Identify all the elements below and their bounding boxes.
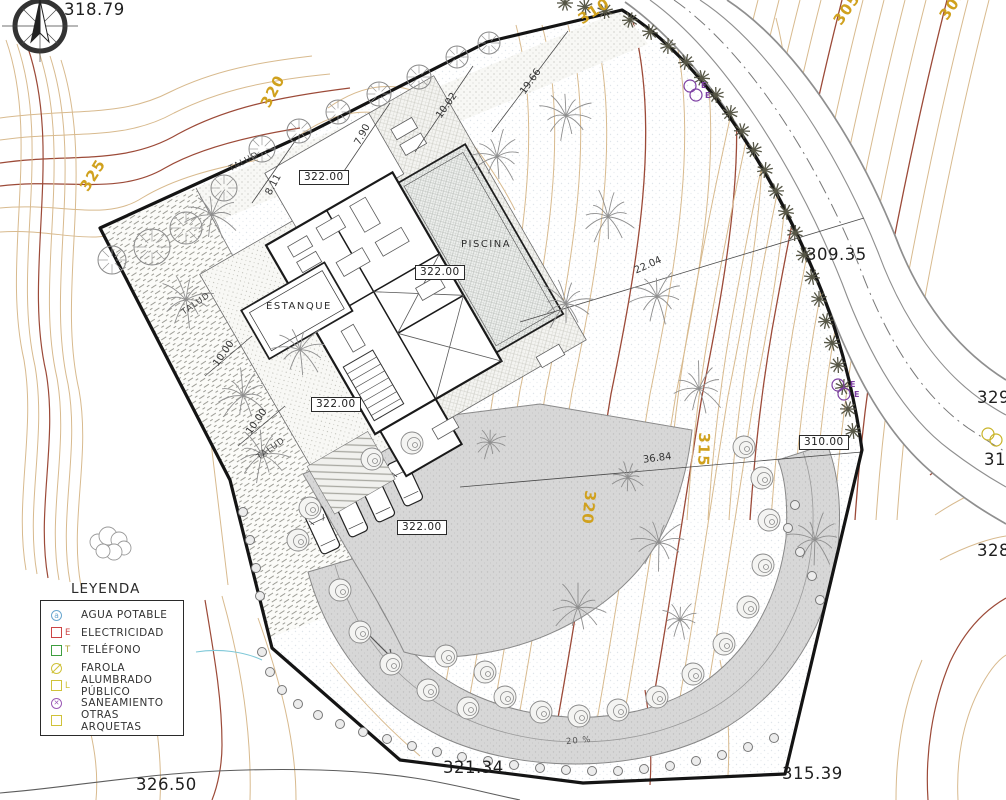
bush — [713, 633, 735, 655]
round-tree — [367, 82, 391, 106]
elevation-label: 329. — [977, 390, 1006, 407]
bush — [494, 686, 516, 708]
legend-item-electricity: E ELECTRICIDAD — [51, 625, 183, 640]
small-shrub — [239, 508, 248, 517]
small-shrub — [294, 700, 303, 709]
site-plan: 318.79 309.35 329. 310 328. 326.50 321.3… — [0, 0, 1006, 800]
bush — [287, 529, 309, 551]
small-shrub — [266, 668, 275, 677]
small-shrub — [408, 742, 417, 751]
level-box: 322.00 — [415, 265, 465, 280]
small-shrub — [510, 761, 519, 770]
pool-label: PISCINA — [461, 240, 511, 250]
streetlamp-icon — [51, 663, 62, 674]
bush — [752, 554, 774, 576]
legend-item-label: ALUMBRADO PÚBLICO — [81, 674, 183, 698]
legend-item-other-boxes: OTRAS ARQUETAS — [51, 713, 183, 728]
bush — [474, 661, 496, 683]
legend-item-telephone: T TELÉFONO — [51, 643, 183, 658]
legend-item-label: FAROLA — [81, 662, 125, 674]
sewerage-icon: ✕ — [51, 698, 62, 709]
legend-item-water: a AGUA POTABLE — [51, 608, 183, 623]
small-shrub — [816, 596, 825, 605]
round-tree — [287, 119, 311, 143]
small-shrub — [314, 711, 323, 720]
small-shrub — [770, 734, 779, 743]
telephone-icon — [51, 645, 62, 656]
bush — [751, 467, 773, 489]
bush — [361, 448, 383, 470]
hedge-shrub — [557, 0, 573, 11]
water-icon: a — [51, 610, 62, 621]
electricity-icon — [51, 627, 62, 638]
legend: a AGUA POTABLE E ELECTRICIDAD T TELÉFONO… — [40, 600, 184, 736]
legend-item-public-lighting: L ALUMBRADO PÚBLICO — [51, 678, 183, 693]
contour-label: 320 — [579, 490, 598, 526]
road-grade-label: 20 % — [566, 736, 592, 747]
bush — [299, 497, 321, 519]
bush — [607, 699, 629, 721]
utility-letter: E — [701, 82, 706, 90]
small-shrub — [588, 767, 597, 776]
small-shrub — [562, 766, 571, 775]
small-shrub — [246, 536, 255, 545]
small-shrub — [256, 592, 265, 601]
cloud-bush — [90, 527, 131, 560]
utility-letter: E — [854, 391, 859, 399]
small-shrub — [666, 762, 675, 771]
bush — [435, 645, 457, 667]
small-shrub — [808, 572, 817, 581]
small-shrub — [383, 735, 392, 744]
bush — [401, 432, 423, 454]
bush — [329, 579, 351, 601]
legend-item-label: TELÉFONO — [81, 644, 141, 656]
bush — [568, 705, 590, 727]
small-shrub — [784, 524, 793, 533]
elevation-label: 318.79 — [64, 2, 125, 19]
round-tree — [326, 100, 350, 124]
elevation-label: 328. — [977, 543, 1006, 560]
other-boxes-icon — [51, 715, 62, 726]
bush — [646, 686, 668, 708]
level-box: 322.00 — [299, 170, 349, 185]
legend-title: LEYENDA — [71, 581, 140, 597]
legend-item-label: ELECTRICIDAD — [81, 627, 164, 639]
elevation-label: 309.35 — [806, 247, 867, 264]
utility-letter: E — [705, 92, 710, 100]
small-shrub — [359, 728, 368, 737]
legend-item-label: OTRAS ARQUETAS — [81, 709, 183, 733]
small-shrub — [336, 720, 345, 729]
pond-label: ESTANQUE — [266, 302, 332, 312]
small-shrub — [796, 548, 805, 557]
small-shrub — [278, 686, 287, 695]
legend-item-label: AGUA POTABLE — [81, 609, 167, 621]
small-shrub — [433, 748, 442, 757]
bush — [457, 697, 479, 719]
contour-label: 315 — [695, 432, 711, 467]
round-tree — [98, 246, 126, 274]
bush — [758, 509, 780, 531]
level-box: 322.00 — [397, 520, 447, 535]
bush — [733, 436, 755, 458]
bush — [737, 596, 759, 618]
small-shrub — [744, 743, 753, 752]
bush — [417, 679, 439, 701]
bush — [380, 653, 402, 675]
public-lighting-icon — [51, 680, 62, 691]
bush — [682, 663, 704, 685]
small-shrub — [791, 501, 800, 510]
elevation-label: 310 — [984, 452, 1006, 469]
small-shrub — [692, 757, 701, 766]
bush — [530, 701, 552, 723]
utility-letter: E — [850, 381, 855, 389]
bush — [349, 621, 371, 643]
level-box: 310.00 — [799, 435, 849, 450]
elevation-label: 315.39 — [782, 766, 843, 783]
small-shrub — [718, 751, 727, 760]
elevation-label: 326.50 — [136, 777, 197, 794]
level-box: 322.00 — [311, 397, 361, 412]
small-shrub — [614, 767, 623, 776]
small-shrub — [640, 765, 649, 774]
small-shrub — [536, 764, 545, 773]
small-shrub — [252, 564, 261, 573]
elevation-label: 321.34 — [443, 760, 504, 777]
legend-item-label: SANEAMIENTO — [81, 697, 164, 709]
small-shrub — [258, 648, 267, 657]
